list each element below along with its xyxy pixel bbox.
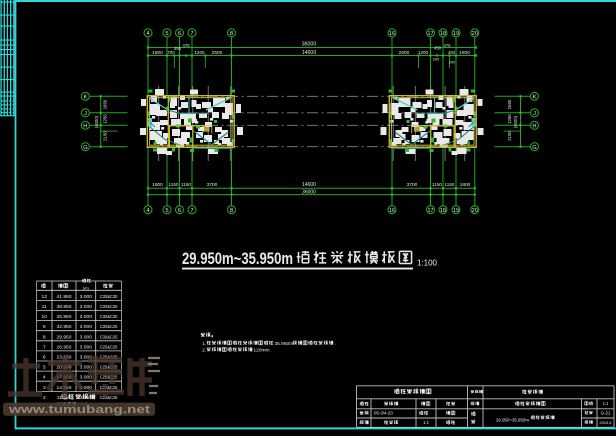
svg-text:6: 6: [178, 208, 181, 214]
svg-text:C25&C25: C25&C25: [100, 365, 118, 370]
svg-text:2150: 2150: [507, 131, 512, 141]
svg-text:6: 6: [178, 31, 181, 37]
svg-text:32.950: 32.950: [57, 324, 72, 330]
svg-text:11: 11: [42, 304, 47, 310]
svg-text:470: 470: [183, 43, 191, 48]
svg-text:450: 450: [448, 50, 456, 55]
svg-text:20: 20: [472, 31, 478, 37]
svg-text:29.950m~35.950m: 29.950m~35.950m: [182, 250, 293, 268]
svg-text:5: 5: [165, 31, 168, 37]
svg-text:3.000: 3.000: [80, 334, 93, 340]
svg-text:C30&C25: C30&C25: [100, 324, 118, 329]
svg-text:470: 470: [444, 43, 452, 48]
svg-text:200: 200: [433, 58, 439, 62]
svg-text:5: 5: [43, 365, 46, 371]
svg-text:17: 17: [428, 208, 434, 214]
svg-text:C30&C25: C30&C25: [100, 334, 118, 339]
svg-text:3.000: 3.000: [80, 304, 93, 310]
svg-text:35.950: 35.950: [57, 314, 72, 320]
svg-text:38.950: 38.950: [57, 304, 72, 310]
svg-text:36000: 36000: [302, 189, 316, 195]
svg-text:2: 2: [43, 395, 46, 401]
svg-text:29.950~35.950m: 29.950~35.950m: [496, 418, 529, 423]
svg-text:1800: 1800: [460, 182, 471, 188]
svg-text:26.950: 26.950: [57, 344, 72, 350]
svg-text:3: 3: [43, 385, 46, 391]
svg-text:1:100: 1:100: [417, 259, 438, 268]
svg-text:3.000: 3.000: [80, 344, 93, 350]
svg-text:12: 12: [41, 294, 47, 300]
svg-text:www.tumubang.net: www.tumubang.net: [8, 404, 151, 416]
svg-text:2013.6: 2013.6: [600, 420, 612, 425]
svg-text:2150: 2150: [103, 131, 108, 141]
svg-text:1150: 1150: [432, 182, 442, 187]
svg-text:19: 19: [453, 31, 459, 37]
svg-text:G: G: [532, 145, 537, 151]
svg-text:200: 200: [449, 61, 455, 65]
svg-text:C30&C30: C30&C30: [100, 294, 118, 299]
svg-text:C25&C25: C25&C25: [100, 375, 118, 380]
svg-text:H: H: [532, 124, 536, 130]
svg-text:14600: 14600: [302, 50, 317, 56]
svg-text:3.000: 3.000: [80, 375, 93, 381]
svg-text:K: K: [533, 95, 537, 101]
svg-text:17: 17: [428, 31, 434, 37]
svg-text:450: 450: [174, 46, 182, 51]
svg-text:2500: 2500: [399, 50, 410, 56]
svg-text:3.000: 3.000: [80, 314, 93, 320]
svg-text:7: 7: [43, 344, 46, 350]
svg-text:16: 16: [389, 208, 395, 214]
svg-text:14600: 14600: [302, 182, 316, 188]
svg-text:C30&C30: C30&C30: [100, 304, 118, 309]
svg-text:H: H: [83, 124, 87, 130]
svg-text:20: 20: [472, 208, 478, 214]
svg-text:1:1: 1:1: [423, 420, 429, 425]
svg-text:.: .: [335, 342, 336, 347]
svg-text:G-21: G-21: [601, 410, 611, 415]
svg-text:36000: 36000: [302, 42, 317, 48]
svg-text:450: 450: [434, 46, 442, 51]
svg-text:(6000): (6000): [513, 115, 518, 128]
svg-text:8: 8: [43, 334, 46, 340]
svg-text:K: K: [83, 95, 87, 101]
svg-text:J: J: [533, 111, 536, 117]
svg-text:2.: 2.: [202, 348, 206, 354]
svg-text:18: 18: [440, 208, 446, 214]
svg-text:1.: 1.: [202, 341, 206, 347]
svg-text:C25&C25: C25&C25: [100, 344, 118, 349]
svg-text:4: 4: [43, 375, 46, 381]
svg-text:3700: 3700: [207, 182, 218, 188]
svg-text:1800: 1800: [152, 182, 163, 188]
svg-text:41.950: 41.950: [57, 294, 72, 300]
svg-text:(6000): (6000): [94, 115, 99, 128]
svg-text:1650: 1650: [103, 99, 108, 109]
svg-text:1800: 1800: [152, 50, 163, 56]
svg-text:1150: 1150: [169, 182, 179, 187]
svg-text:35.950m: 35.950m: [275, 341, 294, 347]
svg-text:C30&C30: C30&C30: [100, 314, 118, 319]
svg-text:6: 6: [43, 355, 46, 361]
svg-text:120mm.: 120mm.: [254, 348, 271, 354]
svg-text:7: 7: [190, 31, 193, 37]
svg-text:1200: 1200: [418, 50, 429, 55]
svg-text:05-3/4-20: 05-3/4-20: [374, 411, 393, 416]
svg-text:1150: 1150: [445, 182, 455, 187]
svg-text:18: 18: [440, 31, 446, 37]
svg-text:3.000: 3.000: [80, 294, 93, 300]
svg-text:1150: 1150: [181, 182, 191, 187]
svg-text:1650: 1650: [507, 99, 512, 109]
svg-text:(m): (m): [83, 285, 90, 290]
svg-text:16: 16: [389, 31, 395, 37]
svg-text:G: G: [83, 145, 88, 151]
svg-text:1250: 1250: [507, 114, 512, 124]
svg-text:J: J: [84, 111, 87, 117]
svg-text:29.950: 29.950: [57, 334, 72, 340]
svg-text:3.000: 3.000: [80, 324, 93, 330]
svg-text:8: 8: [230, 208, 233, 214]
svg-text:9: 9: [43, 324, 46, 330]
svg-text:19: 19: [453, 208, 459, 214]
svg-text:2500: 2500: [212, 50, 223, 56]
svg-text:1:1: 1:1: [603, 401, 609, 406]
svg-text:7: 7: [190, 208, 193, 214]
svg-text:1250: 1250: [103, 114, 108, 124]
svg-text:3700: 3700: [407, 182, 418, 188]
svg-text:10: 10: [41, 314, 47, 320]
svg-text:1200: 1200: [194, 50, 205, 55]
svg-text:1800: 1800: [459, 50, 470, 56]
svg-text:8: 8: [230, 31, 233, 37]
svg-text:5: 5: [165, 208, 168, 214]
